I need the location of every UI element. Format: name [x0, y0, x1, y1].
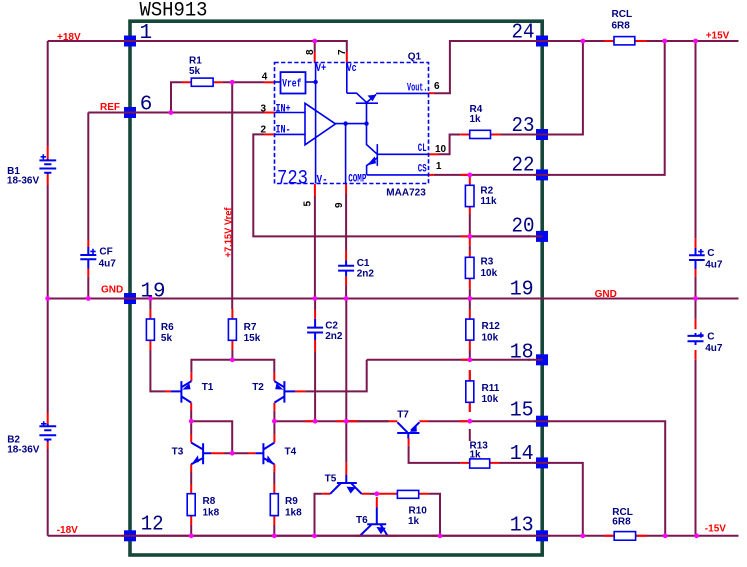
svg-text:22: 22: [512, 155, 535, 178]
svg-text:6R8: 6R8: [612, 20, 631, 31]
svg-text:1k: 1k: [408, 516, 420, 527]
svg-text:T5: T5: [325, 474, 337, 485]
svg-text:4u7: 4u7: [705, 343, 723, 354]
svg-text:IN-: IN-: [276, 125, 291, 137]
svg-text:IN+: IN+: [276, 103, 291, 115]
svg-text:15: 15: [510, 400, 534, 423]
svg-text:CL: CL: [418, 143, 427, 155]
svg-text:WSH913: WSH913: [140, 0, 208, 23]
svg-text:12: 12: [141, 514, 164, 537]
svg-text:1k8: 1k8: [285, 508, 302, 519]
svg-text:T2: T2: [252, 382, 264, 393]
svg-text:CF: CF: [99, 247, 112, 258]
svg-text:1k: 1k: [470, 450, 482, 461]
svg-text:5k: 5k: [189, 66, 201, 77]
svg-text:+15V: +15V: [706, 31, 730, 42]
svg-text:+18V: +18V: [57, 32, 81, 43]
svg-text:11k: 11k: [480, 196, 497, 207]
svg-text:8: 8: [305, 49, 316, 55]
svg-text:1: 1: [140, 22, 153, 45]
svg-text:T3: T3: [172, 447, 184, 458]
svg-text:T7: T7: [397, 409, 409, 420]
svg-text:C: C: [707, 248, 714, 259]
svg-text:-18V: -18V: [57, 525, 78, 536]
svg-text:4: 4: [262, 71, 268, 82]
svg-text:R12: R12: [482, 321, 501, 332]
svg-text:Vout.: Vout.: [407, 82, 428, 94]
svg-text:GND: GND: [595, 289, 617, 300]
svg-text:R2: R2: [480, 186, 493, 197]
svg-text:-15V: -15V: [705, 524, 726, 535]
svg-text:6: 6: [434, 81, 440, 92]
svg-text:2n2: 2n2: [357, 269, 375, 280]
svg-text:Q1: Q1: [408, 52, 422, 63]
svg-text:6: 6: [140, 93, 153, 116]
svg-text:CS: CS: [418, 163, 427, 175]
svg-text:1k8: 1k8: [203, 508, 220, 519]
svg-text:R7: R7: [244, 322, 257, 333]
svg-text:R8: R8: [203, 496, 216, 507]
svg-text:2n2: 2n2: [325, 331, 343, 342]
svg-text:3: 3: [261, 103, 267, 114]
svg-text:C2: C2: [325, 320, 338, 331]
svg-text:10k: 10k: [481, 268, 498, 279]
svg-text:13: 13: [510, 514, 534, 537]
svg-text:T1: T1: [202, 382, 214, 393]
svg-text:RCL: RCL: [612, 9, 633, 20]
svg-text:18-36V: 18-36V: [7, 176, 40, 187]
svg-text:V-: V-: [317, 175, 328, 187]
svg-text:19: 19: [141, 281, 166, 304]
svg-text:T4: T4: [285, 447, 297, 458]
svg-text:Vref: Vref: [282, 78, 302, 90]
svg-text:R3: R3: [481, 257, 494, 268]
svg-text:10k: 10k: [482, 394, 499, 405]
svg-text:18: 18: [510, 341, 534, 364]
svg-text:6R8: 6R8: [612, 517, 631, 528]
svg-text:23: 23: [512, 115, 535, 138]
svg-text:R1: R1: [189, 56, 202, 67]
svg-text:COMP: COMP: [348, 174, 366, 186]
svg-text:4u7: 4u7: [99, 259, 117, 270]
svg-text:MAA723: MAA723: [386, 187, 426, 198]
svg-text:7: 7: [337, 49, 348, 55]
svg-text:R11: R11: [482, 383, 500, 394]
svg-text:10: 10: [435, 144, 447, 155]
svg-text:20: 20: [512, 215, 535, 238]
svg-text:C1: C1: [357, 258, 370, 269]
svg-text:GND: GND: [101, 285, 123, 296]
svg-text:2: 2: [261, 125, 267, 136]
svg-text:1k: 1k: [470, 114, 482, 125]
svg-text:Vc: Vc: [347, 63, 357, 75]
svg-text:+7.15V Vref: +7.15V Vref: [224, 207, 235, 258]
svg-text:9: 9: [334, 202, 345, 208]
svg-text:10k: 10k: [482, 333, 499, 344]
svg-text:723: 723: [277, 168, 308, 191]
svg-text:15k: 15k: [244, 333, 261, 344]
svg-text:24: 24: [512, 22, 535, 45]
svg-text:V+: V+: [316, 63, 327, 75]
svg-text:5: 5: [303, 201, 314, 207]
svg-text:T6: T6: [356, 515, 368, 526]
svg-text:19: 19: [510, 279, 534, 302]
svg-text:5k: 5k: [161, 333, 173, 344]
svg-text:4u7: 4u7: [705, 259, 723, 270]
svg-text:14: 14: [510, 443, 534, 466]
svg-text:18-36V: 18-36V: [7, 444, 40, 455]
svg-text:REF: REF: [100, 102, 120, 113]
svg-text:R6: R6: [161, 322, 174, 333]
svg-text:C: C: [707, 332, 714, 343]
svg-text:R9: R9: [285, 496, 298, 507]
svg-text:1: 1: [436, 161, 442, 172]
